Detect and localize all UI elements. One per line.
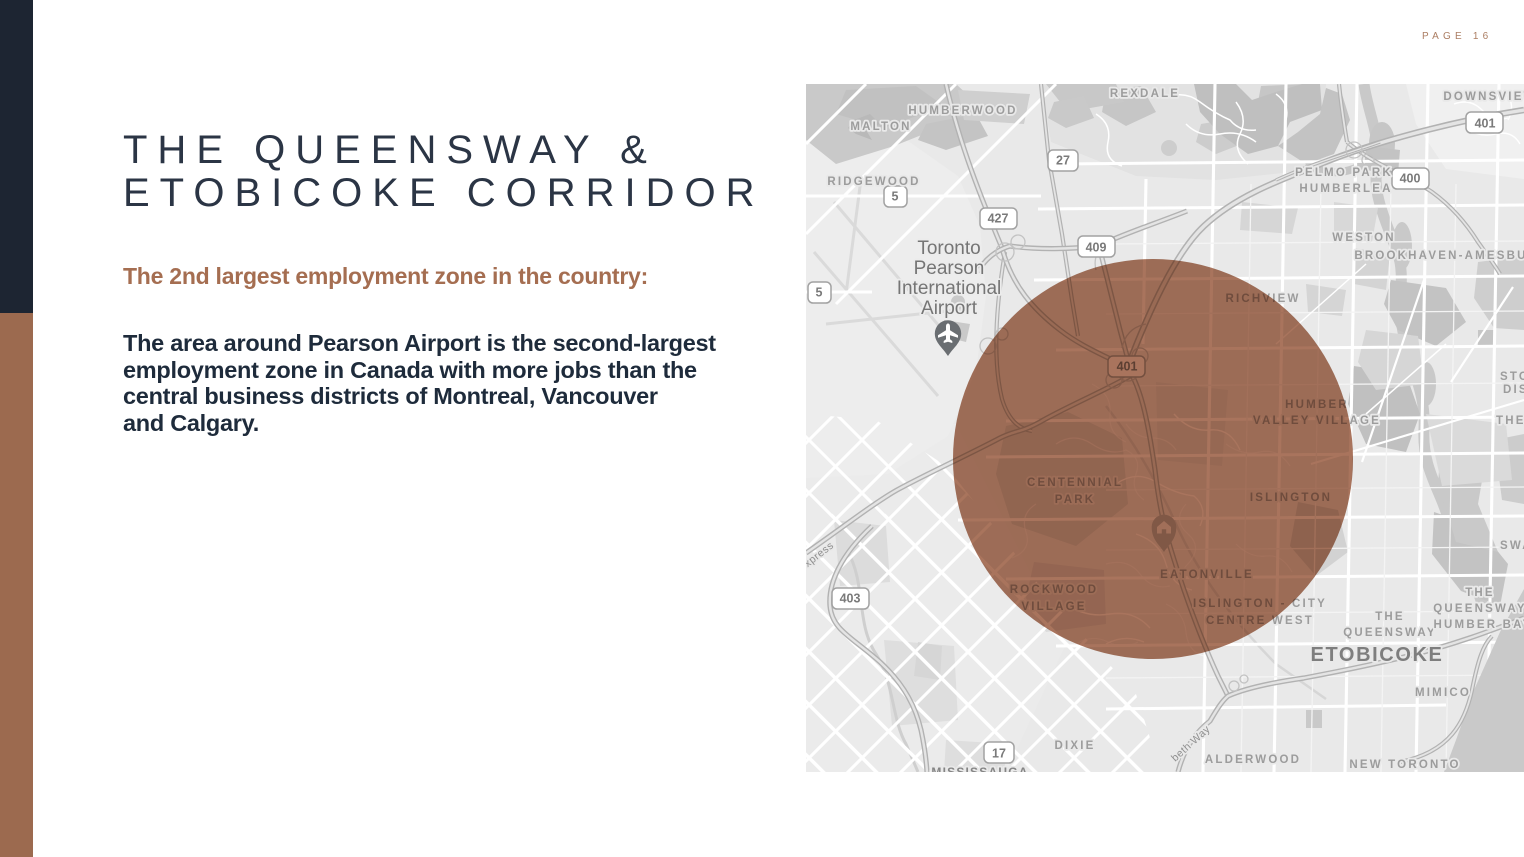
- svg-text:DIXIE: DIXIE: [1054, 740, 1095, 752]
- svg-text:427: 427: [988, 212, 1009, 226]
- svg-text:SWANSEA: SWANSEA: [1500, 540, 1524, 552]
- svg-text:Airport: Airport: [921, 298, 978, 319]
- svg-text:27: 27: [1056, 154, 1070, 168]
- svg-text:QUEENSWAY: QUEENSWAY: [1343, 627, 1437, 639]
- svg-text:WESTON: WESTON: [1332, 232, 1395, 244]
- svg-text:DISTRICT: DISTRICT: [1503, 384, 1524, 396]
- svg-text:ETOBICOKE: ETOBICOKE: [1311, 644, 1444, 666]
- svg-text:Pearson: Pearson: [914, 258, 985, 279]
- svg-text:THE: THE: [1465, 587, 1495, 599]
- svg-text:RIDGEWOOD: RIDGEWOOD: [827, 176, 920, 188]
- svg-text:MIMICO: MIMICO: [1415, 687, 1471, 699]
- svg-text:17: 17: [992, 747, 1006, 761]
- svg-text:DOWNSVIEW: DOWNSVIEW: [1443, 91, 1524, 103]
- svg-text:5: 5: [892, 190, 899, 204]
- svg-text:401: 401: [1475, 117, 1496, 131]
- svg-text:BROOKHAVEN-AMESBURY: BROOKHAVEN-AMESBURY: [1354, 250, 1524, 262]
- svg-text:HUMBERLEA: HUMBERLEA: [1299, 183, 1392, 195]
- svg-text:PELMO PARK: PELMO PARK: [1295, 167, 1393, 179]
- svg-text:HUMBERWOOD: HUMBERWOOD: [908, 105, 1017, 117]
- svg-text:International: International: [897, 278, 1002, 299]
- svg-text:HUMBER BAY: HUMBER BAY: [1434, 619, 1524, 631]
- svg-text:403: 403: [840, 592, 861, 606]
- svg-text:MISSISSAUGA: MISSISSAUGA: [931, 765, 1028, 772]
- svg-text:REXDALE: REXDALE: [1110, 88, 1180, 100]
- svg-text:Toronto: Toronto: [917, 238, 980, 259]
- svg-text:QUEENSWAY: QUEENSWAY: [1433, 603, 1524, 615]
- svg-text:THE: THE: [1375, 611, 1405, 623]
- svg-text:STOCKYARDS: STOCKYARDS: [1500, 371, 1524, 383]
- svg-text:NEW TORONTO: NEW TORONTO: [1349, 759, 1460, 771]
- svg-text:400: 400: [1400, 172, 1421, 186]
- svg-text:MALTON: MALTON: [850, 121, 911, 133]
- svg-text:ALDERWOOD: ALDERWOOD: [1205, 754, 1301, 766]
- svg-text:THE JUNCTION: THE JUNCTION: [1496, 415, 1524, 427]
- svg-text:5: 5: [816, 286, 823, 300]
- svg-text:409: 409: [1086, 241, 1107, 255]
